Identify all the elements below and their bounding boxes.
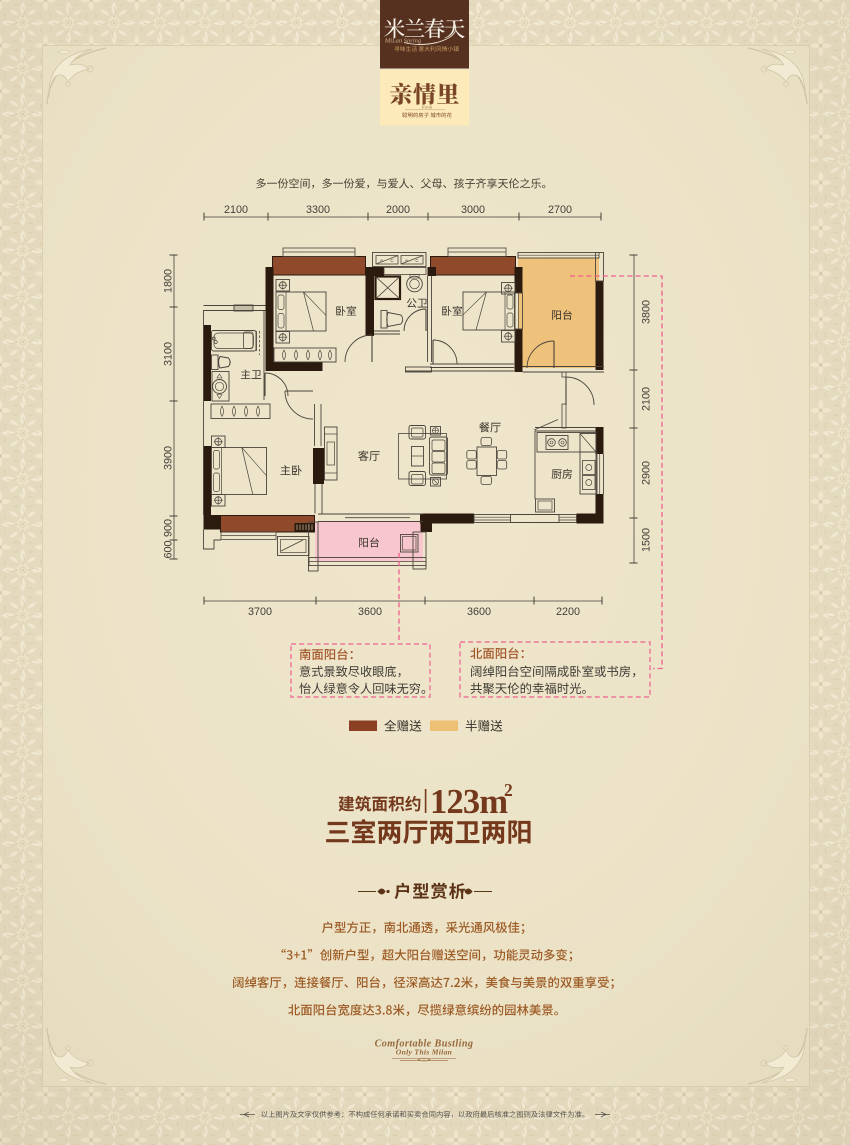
svg-text:2: 2 [504, 780, 513, 800]
svg-text:Fresh: Fresh [421, 105, 433, 110]
svg-text:3100: 3100 [163, 342, 175, 366]
svg-text:MiLan Spring: MiLan Spring [384, 38, 422, 45]
svg-text:3600: 3600 [358, 606, 382, 618]
svg-text:123m: 123m [430, 783, 508, 821]
svg-text:3300: 3300 [306, 204, 330, 216]
svg-text:2700: 2700 [548, 204, 572, 216]
svg-text:600: 600 [163, 540, 175, 558]
svg-text:1800: 1800 [163, 269, 175, 293]
svg-text:3700: 3700 [248, 606, 272, 618]
svg-text:3000: 3000 [461, 204, 485, 216]
svg-text:1500: 1500 [641, 528, 653, 552]
svg-text:3600: 3600 [467, 606, 491, 618]
svg-text:Only This Milan: Only This Milan [396, 1048, 452, 1057]
svg-text:3800: 3800 [641, 300, 653, 324]
svg-text:900: 900 [163, 519, 175, 537]
svg-text:2100: 2100 [224, 204, 248, 216]
svg-text:2900: 2900 [641, 461, 653, 485]
svg-text:2000: 2000 [386, 204, 410, 216]
svg-text:2200: 2200 [556, 606, 580, 618]
svg-text:3900: 3900 [163, 446, 175, 470]
svg-text:2100: 2100 [641, 387, 653, 411]
